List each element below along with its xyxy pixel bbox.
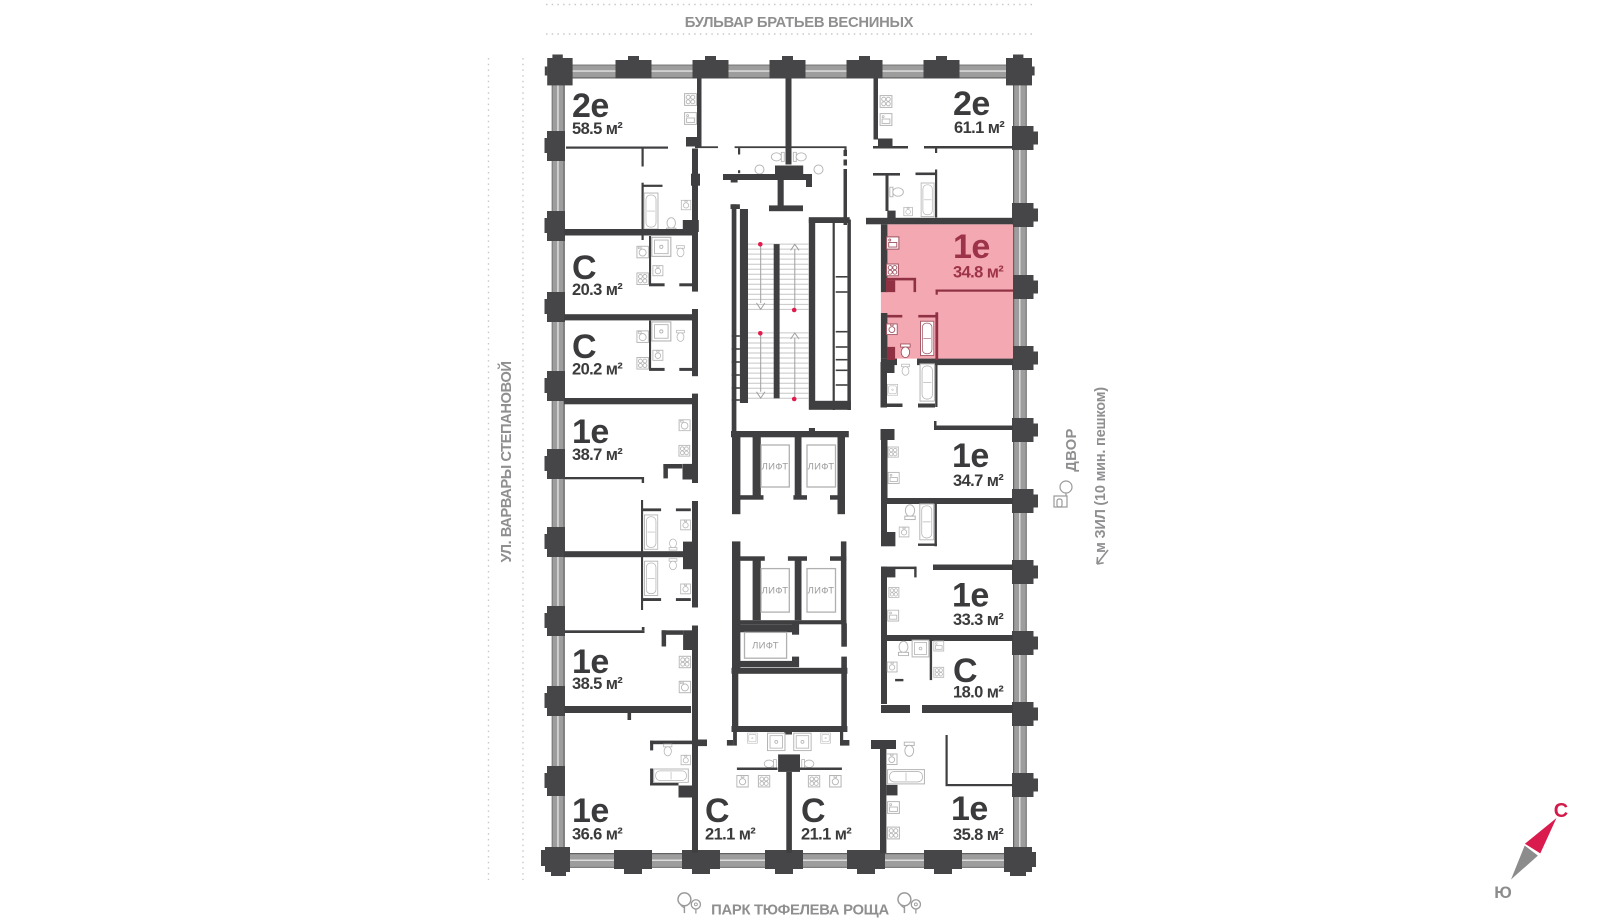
svg-text:21.1 м²: 21.1 м² xyxy=(705,826,756,844)
svg-text:1е: 1е xyxy=(952,577,989,615)
svg-text:38.7 м²: 38.7 м² xyxy=(572,446,623,464)
svg-text:36.6 м²: 36.6 м² xyxy=(572,826,623,844)
svg-text:ЛИФТ: ЛИФТ xyxy=(752,641,779,652)
svg-text:ЛИФТ: ЛИФТ xyxy=(762,462,789,473)
svg-text:УЛ. ВАРВАРЫ СТЕПАНОВОЙ: УЛ. ВАРВАРЫ СТЕПАНОВОЙ xyxy=(497,361,515,562)
svg-text:1е: 1е xyxy=(952,437,989,475)
svg-text:м ЗИЛ (10 мин. пешком): м ЗИЛ (10 мин. пешком) xyxy=(1093,387,1109,553)
svg-text:С: С xyxy=(705,792,729,830)
svg-text:21.1 м²: 21.1 м² xyxy=(801,826,852,844)
svg-text:35.8 м²: 35.8 м² xyxy=(953,826,1004,844)
svg-text:34.8 м²: 34.8 м² xyxy=(953,264,1004,282)
svg-text:ЛИФТ: ЛИФТ xyxy=(762,586,789,597)
svg-text:ЛИФТ: ЛИФТ xyxy=(808,462,835,473)
svg-text:18.0 м²: 18.0 м² xyxy=(953,684,1004,702)
svg-text:58.5 м²: 58.5 м² xyxy=(572,120,623,138)
svg-text:33.3 м²: 33.3 м² xyxy=(953,611,1004,629)
svg-text:С: С xyxy=(801,792,825,830)
svg-text:1е: 1е xyxy=(572,792,609,830)
svg-text:20.2 м²: 20.2 м² xyxy=(572,361,623,379)
svg-text:1е: 1е xyxy=(951,790,988,828)
svg-text:ПАРК ТЮФЕЛЕВА РОЩА: ПАРК ТЮФЕЛЕВА РОЩА xyxy=(711,903,889,919)
svg-text:1е: 1е xyxy=(953,228,990,266)
svg-text:ДВОР: ДВОР xyxy=(1064,428,1080,471)
svg-text:34.7 м²: 34.7 м² xyxy=(953,472,1004,490)
svg-text:20.3 м²: 20.3 м² xyxy=(572,281,623,299)
svg-text:2е: 2е xyxy=(953,85,990,123)
svg-text:ЛИФТ: ЛИФТ xyxy=(808,586,835,597)
svg-text:61.1 м²: 61.1 м² xyxy=(954,119,1005,137)
svg-text:38.5 м²: 38.5 м² xyxy=(572,675,623,693)
svg-text:БУЛЬВАР БРАТЬЕВ ВЕСНИНЫХ: БУЛЬВАР БРАТЬЕВ ВЕСНИНЫХ xyxy=(685,15,914,31)
svg-text:Ю: Ю xyxy=(1494,883,1512,902)
